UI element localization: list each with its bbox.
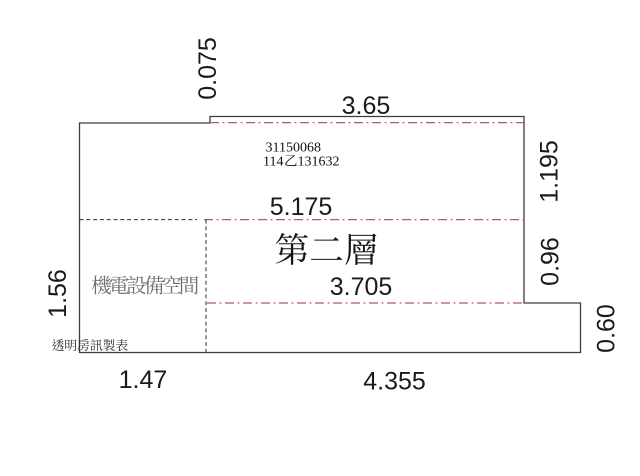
svg-text:1.56: 1.56 bbox=[44, 269, 72, 318]
svg-text:1.195: 1.195 bbox=[536, 140, 564, 203]
svg-text:114: 114 bbox=[263, 155, 283, 170]
svg-text:5.175: 5.175 bbox=[270, 193, 333, 221]
svg-text:3.65: 3.65 bbox=[342, 92, 391, 120]
svg-text:1.47: 1.47 bbox=[119, 366, 168, 394]
svg-text:4.355: 4.355 bbox=[363, 368, 426, 396]
svg-text:131632: 131632 bbox=[298, 155, 340, 170]
svg-text:3.705: 3.705 bbox=[330, 273, 393, 301]
svg-text:0.075: 0.075 bbox=[194, 37, 222, 100]
svg-text:31150068: 31150068 bbox=[266, 141, 321, 156]
svg-text:0.60: 0.60 bbox=[593, 304, 621, 353]
svg-text:0.96: 0.96 bbox=[537, 237, 565, 286]
